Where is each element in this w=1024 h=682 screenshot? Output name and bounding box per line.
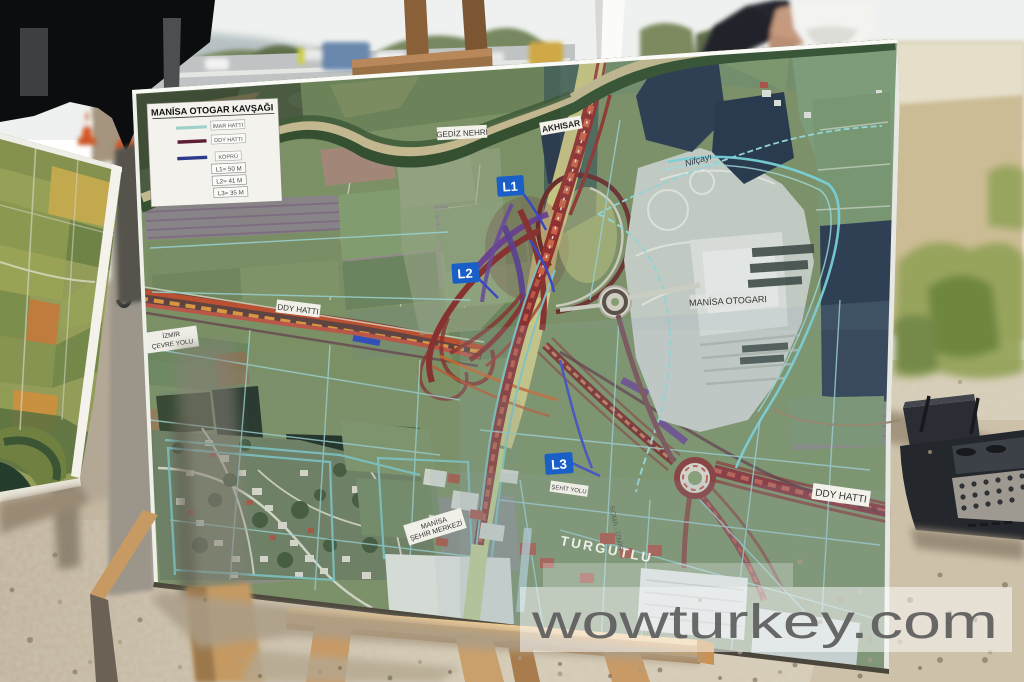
svg-text:L3: L3 — [551, 456, 568, 472]
svg-text:KÖPRÜ: KÖPRÜ — [218, 153, 238, 161]
svg-text:L3= 35 M: L3= 35 M — [218, 189, 244, 197]
svg-text:DDY HATTI: DDY HATTI — [214, 137, 243, 144]
svg-text:L1: L1 — [502, 178, 518, 194]
svg-text:İMAR HATTI: İMAR HATTI — [212, 122, 244, 130]
svg-text:L2= 41 M: L2= 41 M — [216, 177, 242, 185]
svg-text:wowturkey.com: wowturkey.com — [531, 596, 998, 649]
svg-text:L2: L2 — [457, 265, 473, 281]
svg-text:L1= 50 M: L1= 50 M — [216, 165, 242, 173]
